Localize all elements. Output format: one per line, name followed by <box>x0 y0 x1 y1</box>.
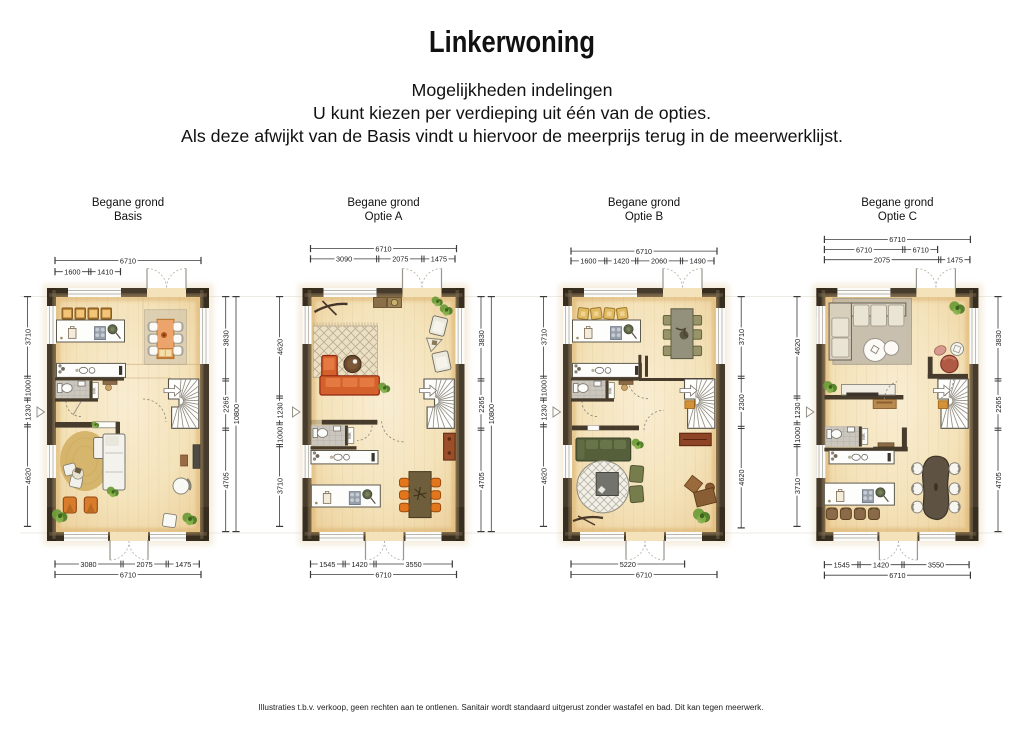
svg-text:1000: 1000 <box>23 380 32 396</box>
svg-text:6710: 6710 <box>889 235 905 244</box>
svg-text:3830: 3830 <box>994 330 1003 346</box>
svg-text:6710: 6710 <box>636 570 652 579</box>
svg-text:3710: 3710 <box>23 329 32 345</box>
svg-text:1600: 1600 <box>580 257 596 266</box>
svg-text:MK: MK <box>92 387 97 394</box>
svg-text:6710: 6710 <box>375 244 391 253</box>
svg-text:5220: 5220 <box>620 560 636 569</box>
svg-text:4620: 4620 <box>23 468 32 484</box>
svg-text:4620: 4620 <box>793 339 802 355</box>
svg-text:Linkerwoning: Linkerwoning <box>429 24 595 59</box>
svg-text:4705: 4705 <box>477 472 486 488</box>
svg-text:6710: 6710 <box>856 245 872 254</box>
svg-text:MK: MK <box>608 387 613 394</box>
svg-text:1475: 1475 <box>431 255 447 264</box>
svg-text:6710: 6710 <box>120 570 136 579</box>
svg-text:1420: 1420 <box>873 561 889 570</box>
svg-text:4705: 4705 <box>222 472 231 488</box>
svg-text:1000: 1000 <box>793 427 802 443</box>
svg-text:4620: 4620 <box>275 339 284 355</box>
svg-text:Begane grond: Begane grond <box>861 197 933 209</box>
svg-text:10800: 10800 <box>487 404 496 424</box>
svg-text:4705: 4705 <box>994 472 1003 488</box>
svg-text:2265: 2265 <box>477 397 486 413</box>
svg-text:Begane grond: Begane grond <box>608 197 680 209</box>
svg-text:3830: 3830 <box>477 330 486 346</box>
svg-text:Mogelijkheden indelingen: Mogelijkheden indelingen <box>412 80 613 100</box>
svg-text:1230: 1230 <box>23 404 32 420</box>
svg-text:Basis: Basis <box>114 211 142 223</box>
svg-text:6710: 6710 <box>636 247 652 256</box>
svg-text:1410: 1410 <box>97 268 113 277</box>
svg-text:1475: 1475 <box>175 560 191 569</box>
svg-text:2060: 2060 <box>651 257 667 266</box>
svg-text:10800: 10800 <box>232 404 241 424</box>
svg-text:3830: 3830 <box>222 330 231 346</box>
svg-text:1230: 1230 <box>793 402 802 418</box>
svg-text:1230: 1230 <box>275 402 284 418</box>
svg-text:2075: 2075 <box>874 256 890 265</box>
svg-text:4620: 4620 <box>539 468 548 484</box>
svg-text:1000: 1000 <box>539 380 548 396</box>
svg-text:6710: 6710 <box>913 245 929 254</box>
svg-text:1545: 1545 <box>834 561 850 570</box>
svg-text:1545: 1545 <box>319 560 335 569</box>
svg-text:3550: 3550 <box>406 560 422 569</box>
svg-text:6710: 6710 <box>120 256 136 265</box>
svg-text:3710: 3710 <box>793 478 802 494</box>
svg-text:1230: 1230 <box>539 404 548 420</box>
svg-text:U kunt kiezen per verdieping u: U kunt kiezen per verdieping uit één van… <box>313 103 711 123</box>
svg-text:3090: 3090 <box>336 255 352 264</box>
svg-text:Optie C: Optie C <box>878 211 917 223</box>
svg-text:2075: 2075 <box>137 560 153 569</box>
svg-text:Illustraties t.b.v. verkoop, g: Illustraties t.b.v. verkoop, geen rechte… <box>259 703 764 712</box>
svg-text:2265: 2265 <box>994 397 1003 413</box>
svg-text:1600: 1600 <box>64 268 80 277</box>
svg-text:2075: 2075 <box>392 255 408 264</box>
svg-text:3710: 3710 <box>275 478 284 494</box>
svg-text:2300: 2300 <box>737 394 746 410</box>
svg-text:Optie B: Optie B <box>625 211 664 223</box>
svg-text:3710: 3710 <box>737 329 746 345</box>
svg-text:Als deze afwijkt van de Basis: Als deze afwijkt van de Basis vindt u hi… <box>181 126 843 146</box>
svg-text:Optie A: Optie A <box>365 211 403 223</box>
svg-text:3710: 3710 <box>539 329 548 345</box>
svg-text:3550: 3550 <box>928 561 944 570</box>
svg-text:1490: 1490 <box>690 257 706 266</box>
svg-text:1475: 1475 <box>947 256 963 265</box>
svg-text:MK: MK <box>347 432 352 439</box>
svg-text:6710: 6710 <box>889 571 905 580</box>
svg-text:MK: MK <box>861 433 866 440</box>
svg-text:3080: 3080 <box>80 560 96 569</box>
svg-text:Begane grond: Begane grond <box>347 197 419 209</box>
svg-text:1420: 1420 <box>352 560 368 569</box>
svg-text:Begane grond: Begane grond <box>92 197 164 209</box>
svg-text:2265: 2265 <box>222 397 231 413</box>
svg-text:1000: 1000 <box>275 427 284 443</box>
svg-text:6710: 6710 <box>375 570 391 579</box>
svg-text:4620: 4620 <box>737 470 746 486</box>
svg-text:1420: 1420 <box>613 257 629 266</box>
